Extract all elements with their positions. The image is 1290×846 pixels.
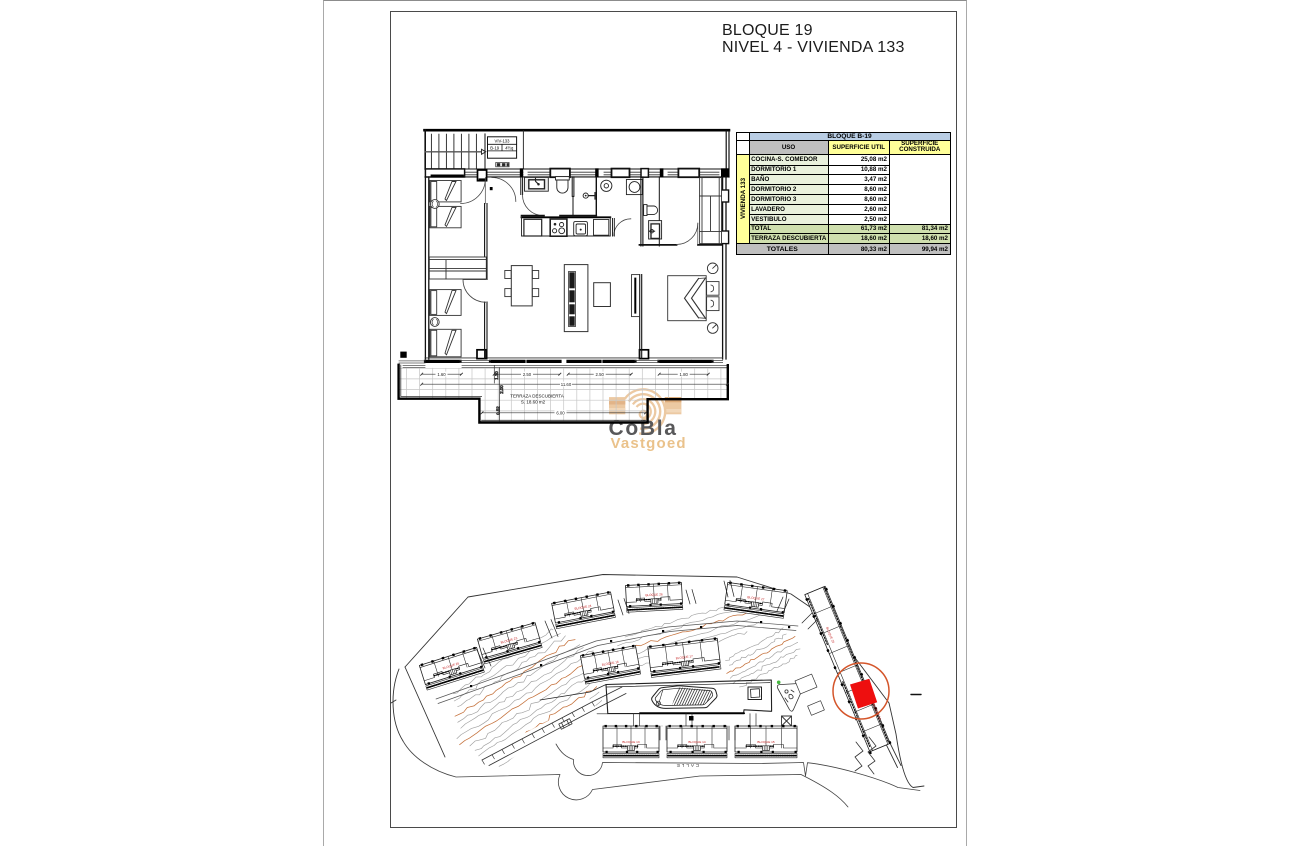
svg-text:4½q: 4½q — [505, 145, 514, 150]
svg-text:1.10: 1.10 — [494, 371, 499, 380]
svg-text:S. 18.60 m2: S. 18.60 m2 — [521, 400, 546, 405]
svg-text:BLOQUE 14: BLOQUE 14 — [688, 740, 705, 744]
svg-text:VIV-133: VIV-133 — [495, 138, 511, 143]
svg-text:1.80: 1.80 — [680, 372, 689, 377]
svg-text:0.52: 0.52 — [496, 406, 501, 415]
svg-text:2.50: 2.50 — [596, 372, 605, 377]
svg-text:B-19: B-19 — [490, 145, 500, 150]
svg-text:BLOQUE 15: BLOQUE 15 — [757, 740, 774, 744]
svg-text:2.00: 2.00 — [499, 385, 504, 394]
svg-text:TERRAZA DESCUBIERTA: TERRAZA DESCUBIERTA — [510, 393, 564, 398]
svg-text:CALLE: CALLE — [675, 763, 700, 768]
svg-text:1.60: 1.60 — [437, 372, 446, 377]
svg-text:11.60: 11.60 — [561, 382, 572, 387]
svg-text:BLOQUE 13: BLOQUE 13 — [622, 740, 639, 744]
svg-text:2.50: 2.50 — [523, 372, 532, 377]
svg-text:6.00: 6.00 — [556, 410, 565, 415]
